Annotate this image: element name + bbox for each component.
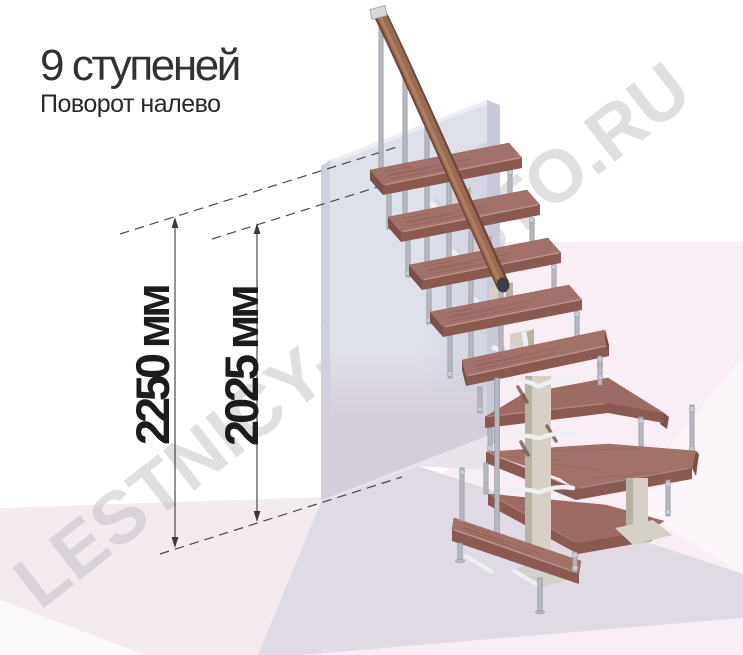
svg-text:2025 мм: 2025 мм xyxy=(215,287,268,446)
svg-text:2250 мм: 2250 мм xyxy=(126,286,179,445)
svg-text:9 ступеней: 9 ступеней xyxy=(40,41,239,90)
svg-text:Поворот налево: Поворот налево xyxy=(40,90,221,118)
